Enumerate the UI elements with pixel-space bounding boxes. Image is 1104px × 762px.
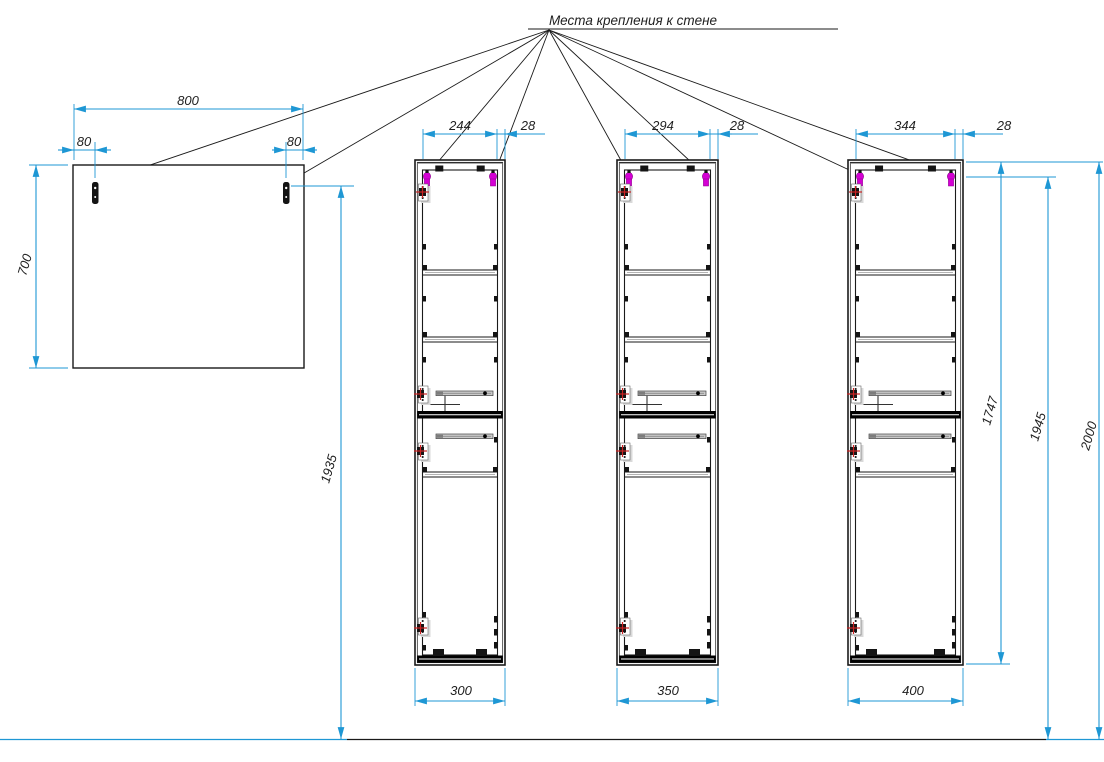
- mirror-width-dim: 800: [177, 93, 199, 108]
- cabinet1-overall-width-dim: 300: [450, 683, 472, 698]
- cabinet1-inner-width-dim: 244: [448, 118, 471, 133]
- furniture-technical-drawing: Места крепления к стене 800 80 80 700 19…: [0, 0, 1104, 762]
- cabinet-1-drawing: [414, 160, 505, 665]
- cabinet2-inner-width-dim: 294: [651, 118, 674, 133]
- cabinet-2-drawing: [616, 160, 718, 665]
- leader-lines: [97, 29, 951, 183]
- bracket-to-floor-dim: 1945: [1026, 410, 1049, 443]
- mirror-panel-drawing: [73, 165, 304, 368]
- cabinet-drawings: [414, 160, 963, 665]
- wall-mount-callout-label: Места крепления к стене: [549, 13, 717, 28]
- mirror-bracket-to-floor-dim: 1935: [317, 452, 340, 485]
- cabinet-3-drawing: [847, 160, 963, 665]
- cabinet2-wall-dim: 28: [729, 118, 745, 133]
- carcass-height-dim: 1747: [978, 394, 1001, 427]
- mirror-height-dim: 700: [14, 252, 35, 278]
- mirror-right-bracket-offset-dim: 80: [287, 134, 302, 149]
- mirror-left-bracket-offset-dim: 80: [77, 134, 92, 149]
- cabinet1-wall-dim: 28: [520, 118, 536, 133]
- cabinet2-overall-width-dim: 350: [657, 683, 679, 698]
- cabinet3-wall-dim: 28: [996, 118, 1012, 133]
- cabinet3-overall-width-dim: 400: [902, 683, 924, 698]
- cabinet3-inner-width-dim: 344: [894, 118, 916, 133]
- top-to-floor-dim: 2000: [1077, 419, 1100, 453]
